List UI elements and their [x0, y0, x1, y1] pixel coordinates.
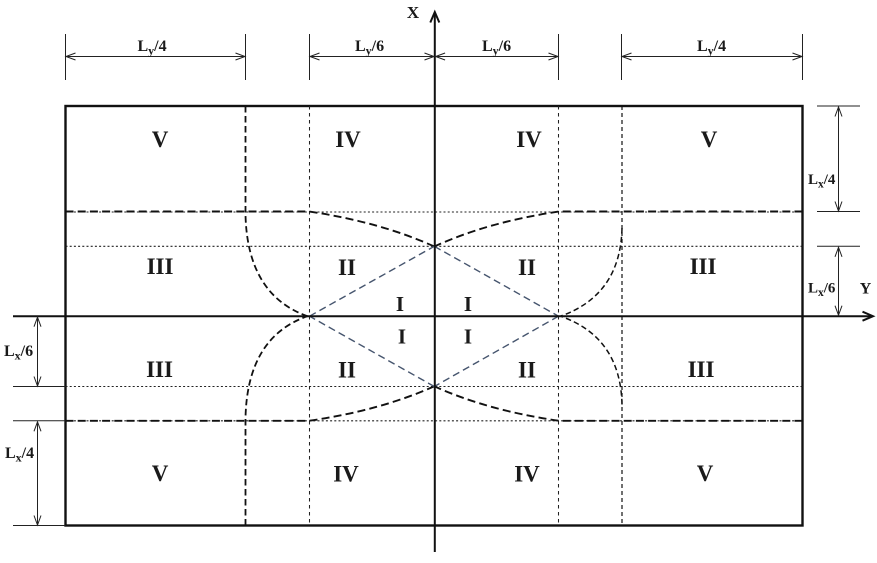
svg-text:V: V — [152, 461, 169, 486]
svg-text:I: I — [398, 325, 406, 349]
svg-text:IV: IV — [335, 127, 361, 152]
svg-text:I: I — [464, 292, 472, 316]
svg-text:II: II — [518, 358, 536, 383]
svg-text:Y: Y — [860, 281, 872, 298]
svg-text:IV: IV — [514, 462, 540, 487]
svg-text:II: II — [518, 255, 536, 280]
svg-text:III: III — [690, 254, 717, 279]
svg-text:IV: IV — [333, 462, 359, 487]
svg-text:X: X — [407, 3, 420, 22]
svg-text:II: II — [338, 255, 356, 280]
svg-text:II: II — [338, 358, 356, 383]
svg-text:V: V — [701, 127, 718, 152]
svg-text:I: I — [396, 292, 404, 316]
svg-text:V: V — [697, 461, 714, 486]
svg-text:III: III — [688, 357, 715, 382]
svg-text:III: III — [146, 357, 173, 382]
svg-text:V: V — [152, 127, 169, 152]
svg-text:IV: IV — [516, 127, 542, 152]
svg-text:I: I — [464, 325, 472, 349]
svg-text:III: III — [147, 254, 174, 279]
